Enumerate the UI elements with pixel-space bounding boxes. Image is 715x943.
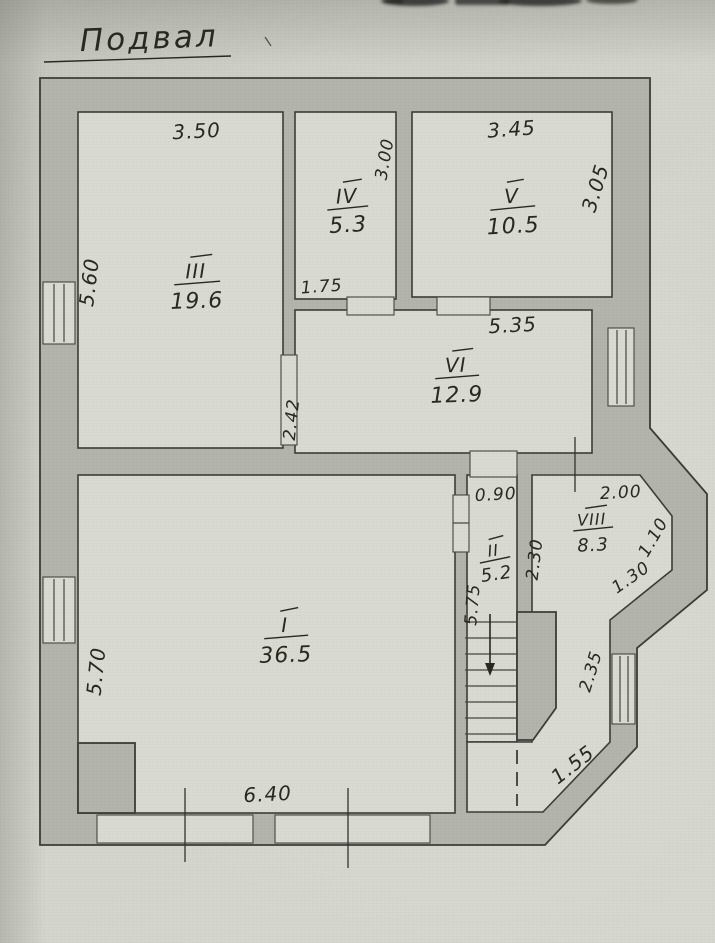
door-roomIV-roomVI <box>347 297 394 315</box>
door-roomV-roomVI <box>437 297 490 315</box>
room-II-area: 5.2 <box>479 562 513 587</box>
room-V-numeral: V <box>504 184 520 209</box>
bottom-wall-opening-right <box>275 815 430 843</box>
plan-body: III 19.6 IV 5.3 V 10.5 VI 12.9 I 36.5 <box>40 78 707 868</box>
dim-stairs-length: 5.75 <box>461 583 485 626</box>
dim-room5-width: 3.45 <box>486 115 536 142</box>
room-IV-numeral: IV <box>335 183 358 208</box>
dim-room6-width: 5.35 <box>488 312 538 339</box>
scanned-floor-plan-page: Подвал <box>0 0 715 943</box>
window-right-upper <box>608 328 634 406</box>
dim-room4-bottom: 1.75 <box>300 276 343 299</box>
room-V-area: 10.5 <box>486 213 540 241</box>
room-VIII-area: 8.3 <box>577 534 610 557</box>
room-VI-floor <box>295 310 592 453</box>
dim-room8-width: 2.00 <box>599 482 642 504</box>
window-left-upper <box>43 282 75 344</box>
window-bay-lower <box>612 654 635 724</box>
basement-floor-plan: Подвал <box>0 0 715 943</box>
dim-room1-width: 6.40 <box>243 781 293 808</box>
room-I-numeral: I <box>281 613 289 637</box>
dim-corridor-width: 0.90 <box>474 484 517 506</box>
room-III-floor <box>78 112 283 448</box>
door-roomI-corridor <box>453 495 469 552</box>
room-III-area: 19.6 <box>170 288 224 315</box>
corner-pier <box>78 743 135 813</box>
room-VI-area: 12.9 <box>430 382 484 409</box>
window-left-lower <box>43 577 75 643</box>
door-roomVI-corridor <box>470 451 517 477</box>
dim-room1-height: 5.70 <box>82 646 111 697</box>
room-I-area: 36.5 <box>259 642 313 669</box>
bottom-wall-opening-left <box>97 815 253 843</box>
room-VI-numeral: VI <box>445 353 467 378</box>
room-VIII-numeral: VIII <box>577 509 607 529</box>
room-IV-area: 5.3 <box>329 212 368 239</box>
room-III-numeral: III <box>185 259 207 284</box>
page-title: Подвал <box>79 18 219 59</box>
dim-room3-width: 3.50 <box>172 118 222 145</box>
